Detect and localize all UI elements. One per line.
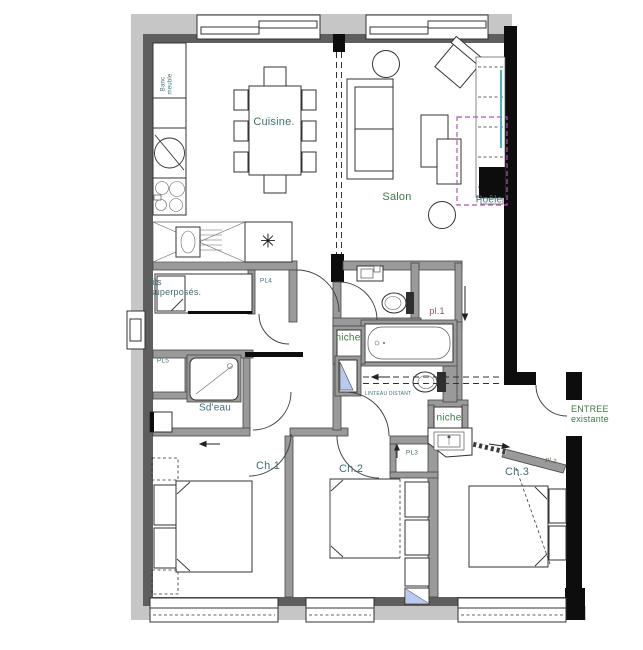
ch2-bed — [330, 479, 429, 558]
kitchen-furniture — [153, 43, 316, 215]
pouf-circle — [429, 202, 456, 229]
water-heater-box — [245, 222, 292, 262]
floor-plan-page: Cuisine.SalonPoêleBanc meublelits superp… — [0, 0, 643, 650]
bathtub — [361, 320, 457, 366]
entrance-door-arc — [536, 385, 567, 416]
niche-2-box — [434, 407, 462, 429]
bottom-window-2 — [306, 598, 374, 622]
ch1-bed — [152, 458, 252, 594]
bottom-window-3 — [458, 598, 566, 622]
arrow-down-pl1 — [463, 286, 468, 320]
wood-stove — [479, 167, 505, 198]
arrow-left-1 — [372, 375, 390, 380]
salon-furniture — [337, 36, 508, 254]
coffee-table-2 — [437, 139, 461, 184]
shower-tray — [187, 355, 241, 402]
toilet-2-icon — [413, 372, 446, 392]
technical-zone — [153, 222, 292, 262]
arrow-left-2 — [200, 442, 220, 447]
pl4-door-arc — [259, 314, 289, 344]
ch3-bed — [469, 486, 566, 567]
top-window-2 — [366, 15, 488, 39]
bedroom-furniture — [152, 458, 566, 604]
left-window — [127, 311, 145, 349]
sofa — [347, 79, 393, 179]
corridor-door-arc — [345, 392, 389, 436]
kitchen-salon-partition — [337, 52, 342, 254]
corner-shower — [335, 356, 361, 396]
sdeau-sliding-door — [245, 352, 303, 357]
ch2-door-arc — [337, 436, 379, 478]
vmc-unit — [176, 227, 200, 257]
wc-door-arc — [339, 282, 377, 320]
closet-box — [405, 558, 429, 586]
top-window-1 — [197, 15, 320, 39]
side-table-circle — [373, 51, 400, 78]
angled-wall — [502, 449, 566, 473]
blue-corner-box — [405, 588, 429, 604]
toilet-1-icon — [382, 292, 414, 314]
bottom-window-1 — [150, 598, 278, 622]
sdeau-door-arc — [253, 392, 291, 430]
dining-table — [234, 67, 316, 193]
floorplan-svg — [0, 0, 643, 650]
hand-sink-icon — [357, 266, 383, 281]
bunkroom-furniture — [155, 274, 252, 402]
